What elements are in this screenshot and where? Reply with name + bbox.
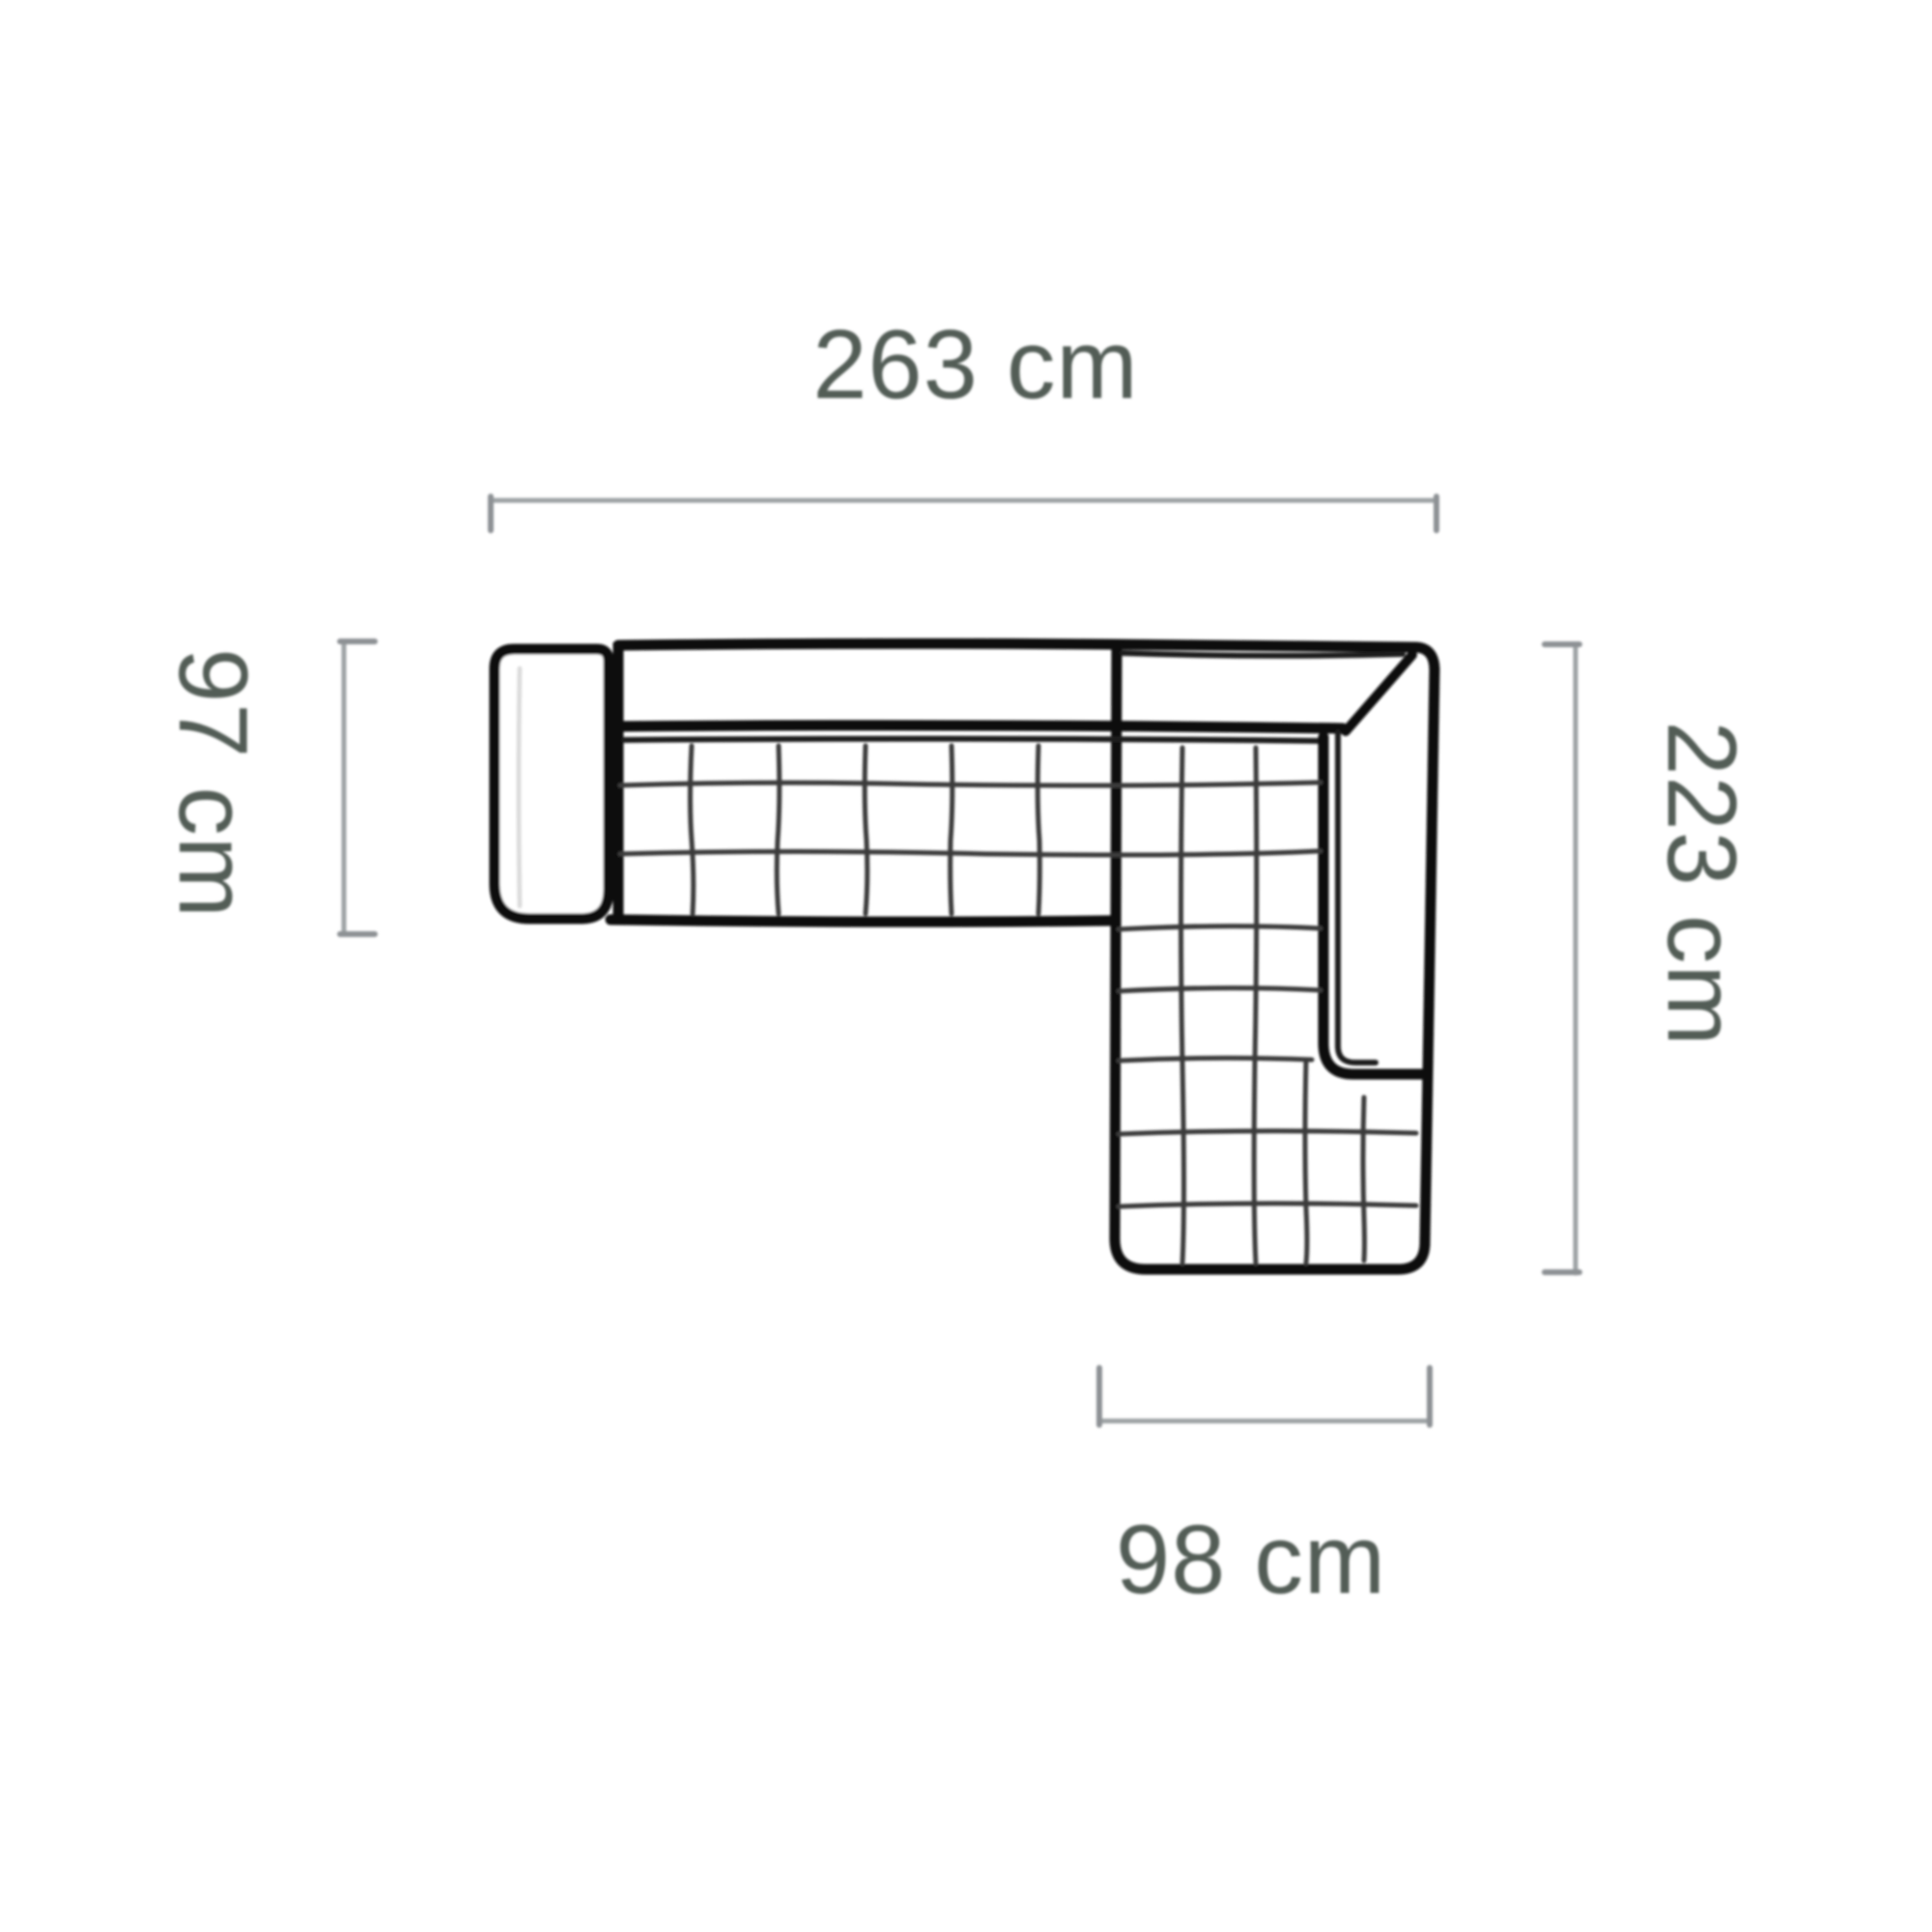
svg-text:98 cm: 98 cm [1116,1506,1386,1614]
svg-text:263 cm: 263 cm [812,311,1138,419]
svg-text:97 cm: 97 cm [158,648,267,919]
svg-text:223 cm: 223 cm [1647,721,1755,1046]
